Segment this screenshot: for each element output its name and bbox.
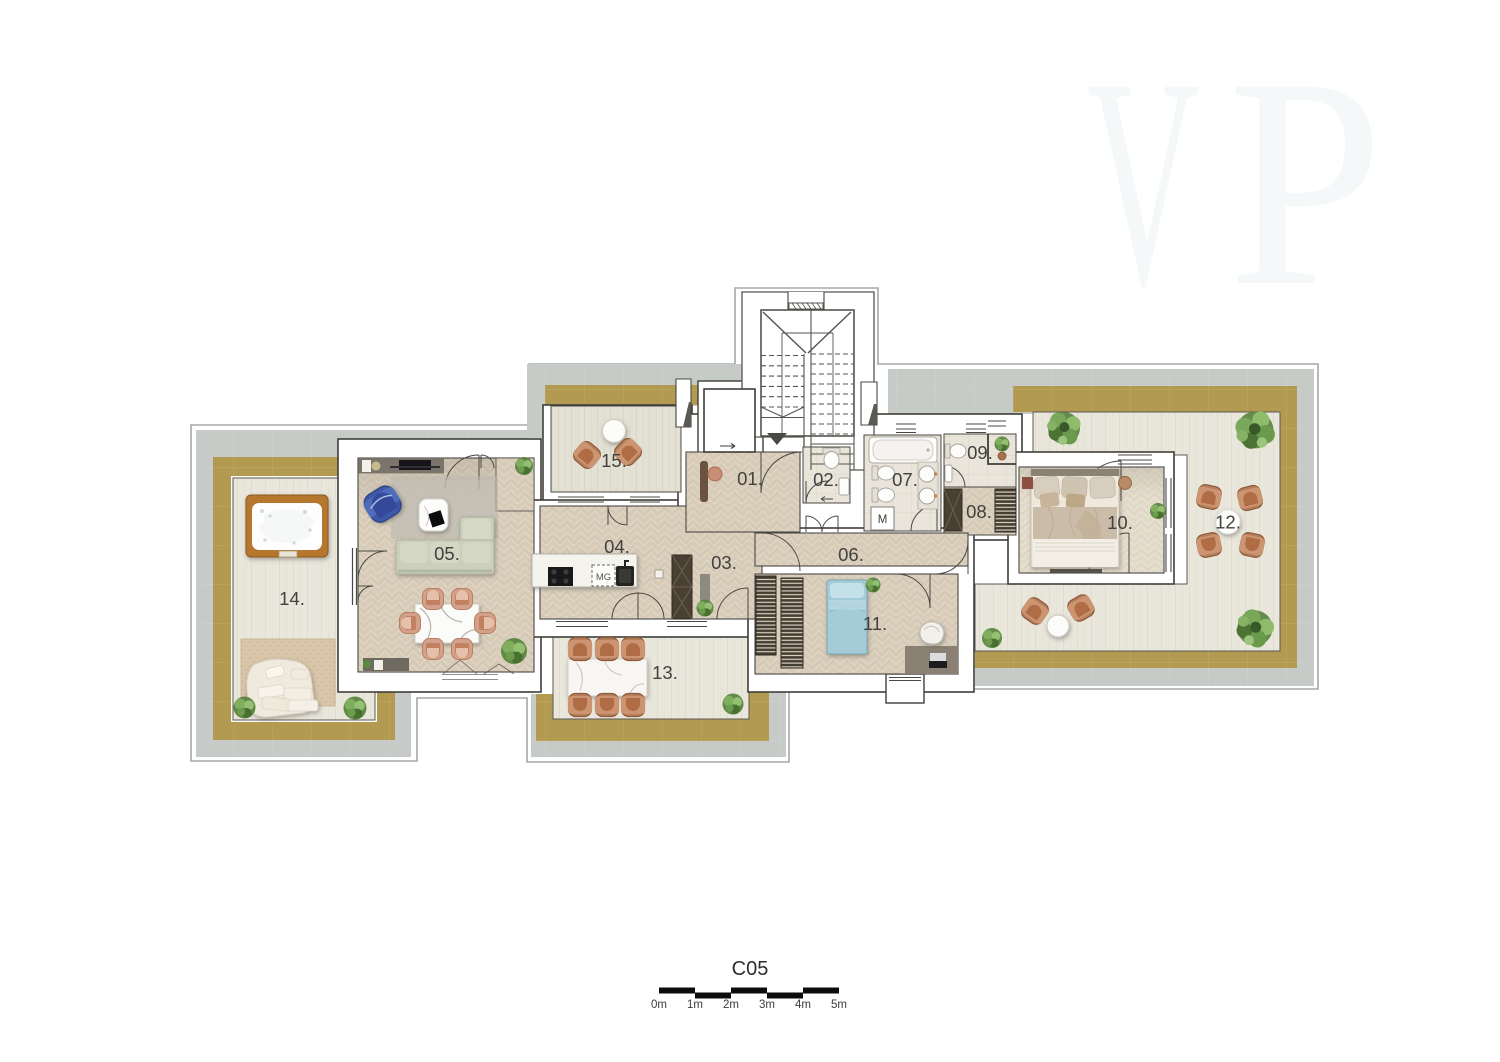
svg-text:P: P [1228,16,1383,348]
svg-text:07.: 07. [892,469,918,490]
svg-text:03.: 03. [711,552,737,573]
svg-text:2m: 2m [723,999,739,1011]
svg-text:0m: 0m [651,999,667,1011]
svg-text:1m: 1m [687,999,703,1011]
svg-text:11.: 11. [863,613,887,634]
svg-text:04.: 04. [604,536,630,557]
svg-text:MG: MG [596,572,611,583]
svg-text:3m: 3m [759,999,775,1011]
svg-text:5m: 5m [831,999,847,1011]
svg-text:02.: 02. [813,469,839,490]
svg-text:C05: C05 [732,958,769,980]
svg-text:06.: 06. [838,544,864,565]
svg-text:14.: 14. [279,588,305,609]
svg-text:13.: 13. [652,662,678,683]
svg-text:V: V [1087,16,1200,348]
svg-text:4m: 4m [795,999,811,1011]
svg-text:10.: 10. [1107,512,1133,533]
svg-text:01.: 01. [737,468,763,489]
svg-text:M: M [878,514,888,526]
svg-text:15.: 15. [601,450,627,471]
svg-text:05.: 05. [434,543,460,564]
svg-text:08.: 08. [966,501,992,522]
svg-text:09.: 09. [967,442,993,463]
svg-text:12.: 12. [1215,512,1241,533]
